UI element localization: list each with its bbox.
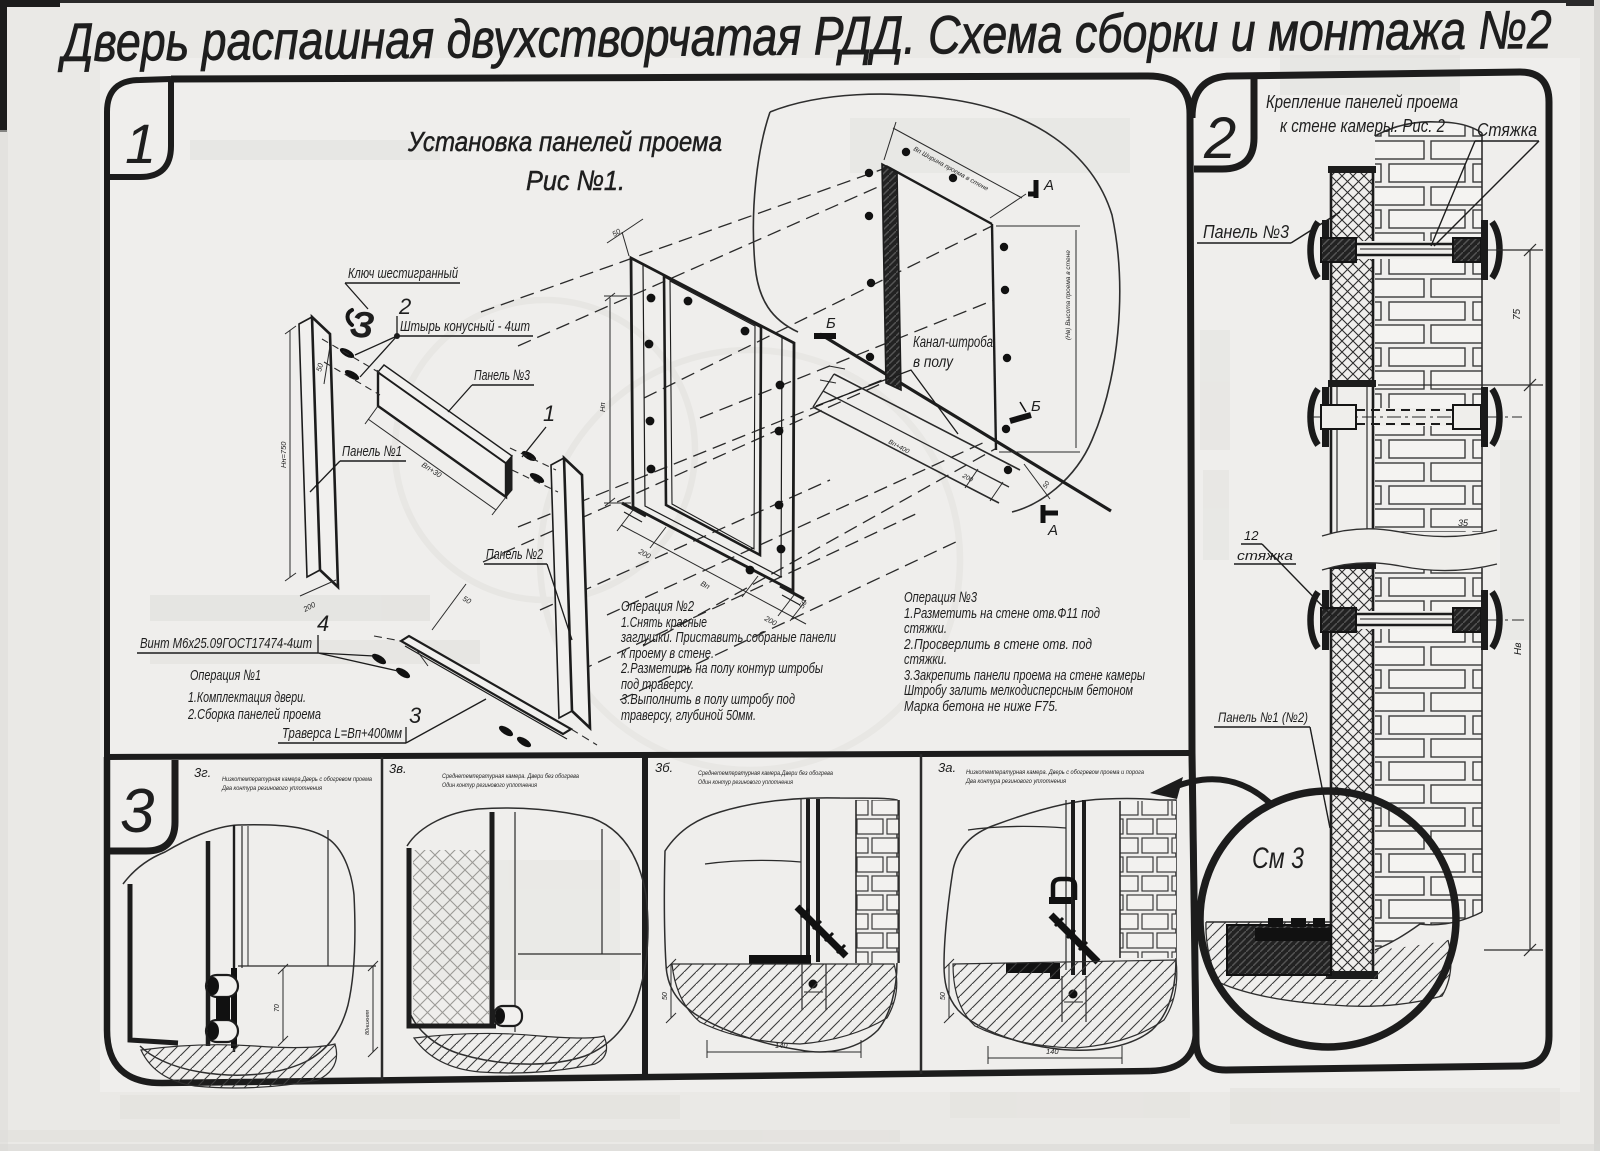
svg-text:140: 140 bbox=[775, 1041, 788, 1050]
svg-text:Один контур резинового уплотне: Один контур резинового уплотнения bbox=[698, 779, 794, 786]
svg-text:Б: Б bbox=[826, 315, 836, 332]
svg-text:2.Разметить на полу контур штр: 2.Разметить на полу контур штробы bbox=[620, 660, 823, 677]
svg-text:Операция №3: Операция №3 bbox=[904, 589, 977, 606]
svg-text:Панель №1 (№2): Панель №1 (№2) bbox=[1218, 709, 1308, 725]
svg-text:140: 140 bbox=[1046, 1047, 1059, 1056]
svg-text:Низкотемпературная камера.Двер: Низкотемпературная камера.Дверь с обогре… bbox=[222, 776, 372, 783]
svg-text:3г.: 3г. bbox=[194, 765, 211, 780]
svg-text:стяжки.: стяжки. bbox=[904, 620, 947, 637]
svg-text:А: А bbox=[1043, 177, 1054, 194]
svg-text:50: 50 bbox=[940, 992, 947, 1000]
svg-text:3б.: 3б. bbox=[655, 760, 673, 775]
svg-text:3: 3 bbox=[120, 777, 154, 846]
svg-text:Крепление панелей проема: Крепление панелей проема bbox=[1266, 91, 1458, 112]
svg-text:Два контура резинового уплотне: Два контура резинового уплотнения bbox=[221, 785, 323, 792]
svg-text:траверсу, глубиной 50мм.: траверсу, глубиной 50мм. bbox=[621, 707, 756, 724]
svg-text:Винт М6х25.09ГОСТ17474-4шт: Винт М6х25.09ГОСТ17474-4шт bbox=[140, 635, 312, 652]
svg-text:заглушки. Приставить собраные: заглушки. Приставить собраные панели bbox=[620, 629, 836, 646]
svg-text:(Hв) Высота проема в стене: (Hв) Высота проема в стене bbox=[1065, 250, 1072, 340]
svg-text:1: 1 bbox=[125, 112, 156, 175]
svg-text:1: 1 bbox=[543, 401, 555, 426]
svg-text:к стене камеры. Рис. 2: к стене камеры. Рис. 2 bbox=[1280, 115, 1446, 136]
svg-text:Панель №2: Панель №2 bbox=[486, 546, 543, 563]
svg-text:50: 50 bbox=[662, 992, 669, 1000]
svg-text:Панель №1: Панель №1 bbox=[342, 443, 402, 460]
svg-text:Нв: Нв bbox=[1513, 643, 1524, 655]
svg-text:Стяжка: Стяжка bbox=[1477, 120, 1537, 140]
svg-text:3в.: 3в. bbox=[389, 761, 407, 776]
svg-text:3а.: 3а. bbox=[938, 760, 956, 775]
svg-text:Операция №1: Операция №1 bbox=[190, 667, 261, 684]
svg-text:стяжки.: стяжки. bbox=[904, 651, 947, 668]
svg-text:в полу: в полу bbox=[913, 354, 954, 371]
svg-text:Низкотемпературная камера. Две: Низкотемпературная камера. Дверь с обогр… bbox=[966, 769, 1145, 776]
svg-text:70: 70 bbox=[274, 1004, 281, 1012]
svg-text:Рис №1.: Рис №1. bbox=[526, 165, 625, 196]
svg-text:12: 12 bbox=[1244, 528, 1259, 543]
svg-text:Штробу залить мелкодисперсным: Штробу залить мелкодисперсным бетоном bbox=[904, 682, 1133, 699]
svg-text:См 3: См 3 bbox=[1252, 842, 1304, 875]
svg-text:А: А bbox=[1047, 522, 1058, 539]
svg-text:4: 4 bbox=[317, 611, 329, 636]
svg-text:Канал-штроба: Канал-штроба bbox=[913, 334, 993, 351]
svg-text:80нижняя: 80нижняя bbox=[365, 1010, 371, 1035]
svg-text:Hп: Hп bbox=[598, 402, 607, 412]
svg-text:3.Выполнить в полу штробу под: 3.Выполнить в полу штробу под bbox=[621, 691, 795, 708]
svg-text:75: 75 bbox=[1512, 308, 1523, 320]
svg-text:Б: Б bbox=[1031, 398, 1041, 415]
svg-text:Один контур резинового уплотне: Один контур резинового уплотнения bbox=[442, 782, 538, 789]
svg-text:Панель №3: Панель №3 bbox=[1203, 222, 1289, 242]
svg-text:стяжка: стяжка bbox=[1237, 548, 1293, 563]
svg-text:2: 2 bbox=[398, 294, 411, 319]
svg-text:1.Комплектация двери.: 1.Комплектация двери. bbox=[188, 689, 306, 706]
svg-text:Панель №3: Панель №3 bbox=[474, 367, 530, 384]
svg-text:35: 35 bbox=[1458, 518, 1469, 528]
svg-text:2: 2 bbox=[1203, 106, 1236, 171]
svg-text:3: 3 bbox=[409, 703, 422, 728]
svg-text:Ключ шестигранный: Ключ шестигранный bbox=[348, 265, 458, 282]
svg-text:Установка панелей проема: Установка панелей проема bbox=[407, 126, 722, 157]
svg-text:Среднетемпературная камера.Две: Среднетемпературная камера.Двери без обо… bbox=[698, 770, 833, 777]
svg-text:2.Сборка панелей проема: 2.Сборка панелей проема bbox=[187, 706, 321, 723]
svg-text:Траверса L=Bп+400мм: Траверса L=Bп+400мм bbox=[282, 725, 402, 742]
svg-text:Марка бетона не ниже F75.: Марка бетона не ниже F75. bbox=[904, 698, 1058, 715]
svg-text:Среднетемпературная камера. Дв: Среднетемпературная камера. Двери без об… bbox=[442, 773, 579, 780]
svg-text:Два контура резинового уплотне: Два контура резинового уплотнения bbox=[965, 778, 1067, 785]
svg-text:Штырь конусный - 4шт: Штырь конусный - 4шт bbox=[400, 318, 530, 335]
svg-text:Операция №2: Операция №2 bbox=[621, 598, 694, 615]
svg-text:Hн=750: Hн=750 bbox=[279, 441, 288, 468]
